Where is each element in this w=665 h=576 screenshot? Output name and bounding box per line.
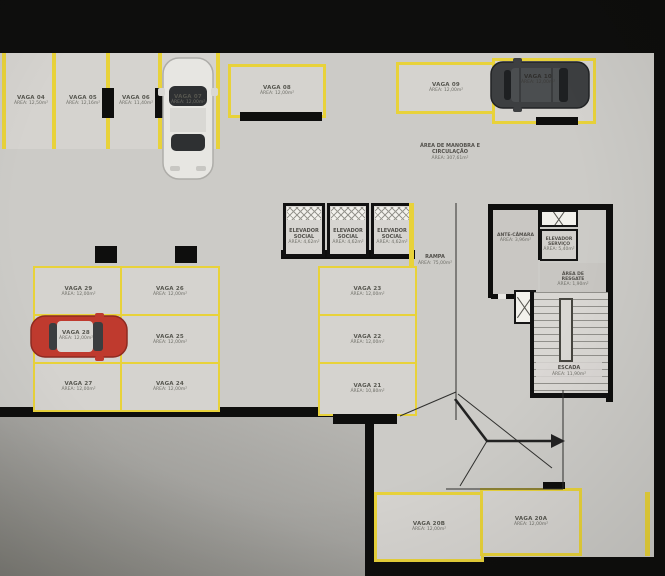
ramp-label: RAMPA ÁREA: 75,00m² xyxy=(414,250,456,272)
service-elevator-label: ELEVADOR SERVIÇO ÁREA: 5,40m² xyxy=(540,231,578,259)
vaga-28-label: VAGA 28 ÁREA: 12,00m² xyxy=(48,328,104,344)
white-car-top-view-icon xyxy=(158,56,218,182)
stair-handrail xyxy=(559,298,573,362)
vaga-10-label: VAGA 10 ÁREA: 12,00m² xyxy=(508,72,568,88)
maneuver-area-label: ÁREA DE MANOBRA E CIRCULAÇÃO ÁREA: 307,6… xyxy=(385,136,515,170)
direction-arrow xyxy=(455,399,551,441)
stair-label: ESCADA ÁREA: 11,90m² xyxy=(536,362,602,382)
ante-camara-label: ANTE-CÂMARA ÁREA: 3,96m² xyxy=(491,228,540,248)
garage-floor-plan: VAGA 04ÁREA: 12,50m² VAGA 05ÁREA: 12,16m… xyxy=(0,0,665,576)
vaga-07-label: VAGA 07 ÁREA: 12,00m² xyxy=(160,92,216,108)
rescue-area-label: ÁREA DE RESGATE ÁREA: 1,90m² xyxy=(548,265,598,295)
